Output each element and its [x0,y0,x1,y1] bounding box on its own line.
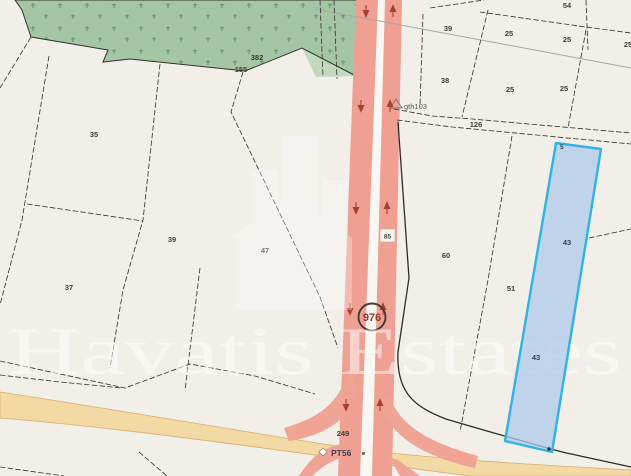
parcel-number: 39 [444,24,452,33]
parcel-number: 35 [90,130,98,139]
lane-ref-plate: 85 [380,229,395,242]
parcel-number: 25 [624,40,631,49]
highlight-parcel-number: 43 [563,238,571,247]
parcel-number: 37 [65,283,73,292]
road-point-tick [362,452,365,455]
lane-ref-number: 85 [384,234,392,241]
parcel-number: 38 [441,76,449,85]
cadastral-map[interactable]: 35 39 47 37 54 39 25 25 25 38 25 25 126 … [0,0,631,476]
road-number: 249 [337,429,350,438]
highlight-corner-dot [547,447,551,451]
parcel-number: 60 [442,251,450,260]
parcel-number: 51 [507,284,515,293]
parcel-number: 54 [563,1,572,10]
map-canvas[interactable]: 35 39 47 37 54 39 25 25 25 38 25 25 126 … [0,0,631,476]
road-point-label: PT56 [331,448,352,458]
parcel-number: 25 [505,29,513,38]
road-track-number: 126 [470,120,483,129]
highlight-corner-number: 5 [560,144,564,151]
parcel-number: 25 [560,84,568,93]
survey-marker-label: gth103 [404,102,427,111]
highlight-parcel-number: 43 [532,353,540,362]
parcel-number: 25 [563,35,571,44]
parcel-number: 25 [506,85,514,94]
parcel-number: 39 [168,235,176,244]
forest-boundary-number: 155 [235,65,248,74]
forest-area-number: 382 [251,53,264,62]
